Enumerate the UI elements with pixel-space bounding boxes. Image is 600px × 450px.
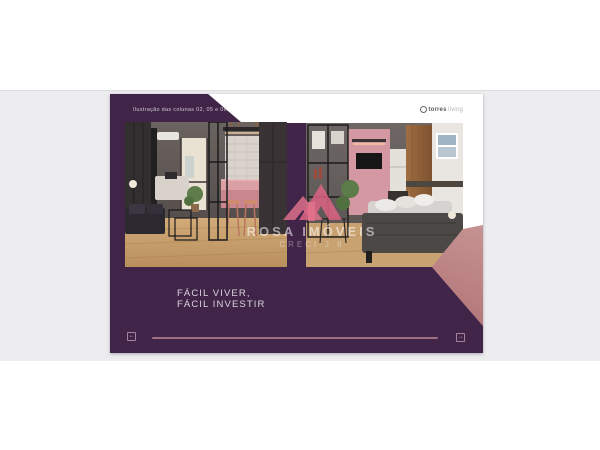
brand-logo: torresliving: [420, 106, 463, 113]
headline-line2: FÁCIL INVESTIR: [177, 299, 265, 310]
prev-arrow-icon: ←: [129, 333, 135, 339]
slide-headline: FÁCIL VIVER, FÁCIL INVESTIR: [177, 288, 265, 310]
prev-slide-button[interactable]: ←: [127, 332, 136, 341]
slide-progress-bar[interactable]: [152, 337, 438, 339]
photo-bedroom: [306, 123, 463, 267]
slide-caption: Ilustração das colunas 02, 05 e 06: [133, 107, 227, 113]
circle-logo-icon: [420, 106, 427, 113]
headline-line1: FÁCIL VIVER,: [177, 288, 265, 299]
photo-living-room: [125, 122, 287, 267]
brand-name: torres: [428, 107, 446, 113]
next-arrow-icon: →: [458, 334, 464, 340]
brand-suffix: living: [448, 107, 463, 113]
presentation-slide: Ilustração das colunas 02, 05 e 06 torre…: [110, 94, 483, 353]
next-slide-button[interactable]: →: [456, 333, 465, 342]
page-background: Ilustração das colunas 02, 05 e 06 torre…: [0, 0, 600, 450]
